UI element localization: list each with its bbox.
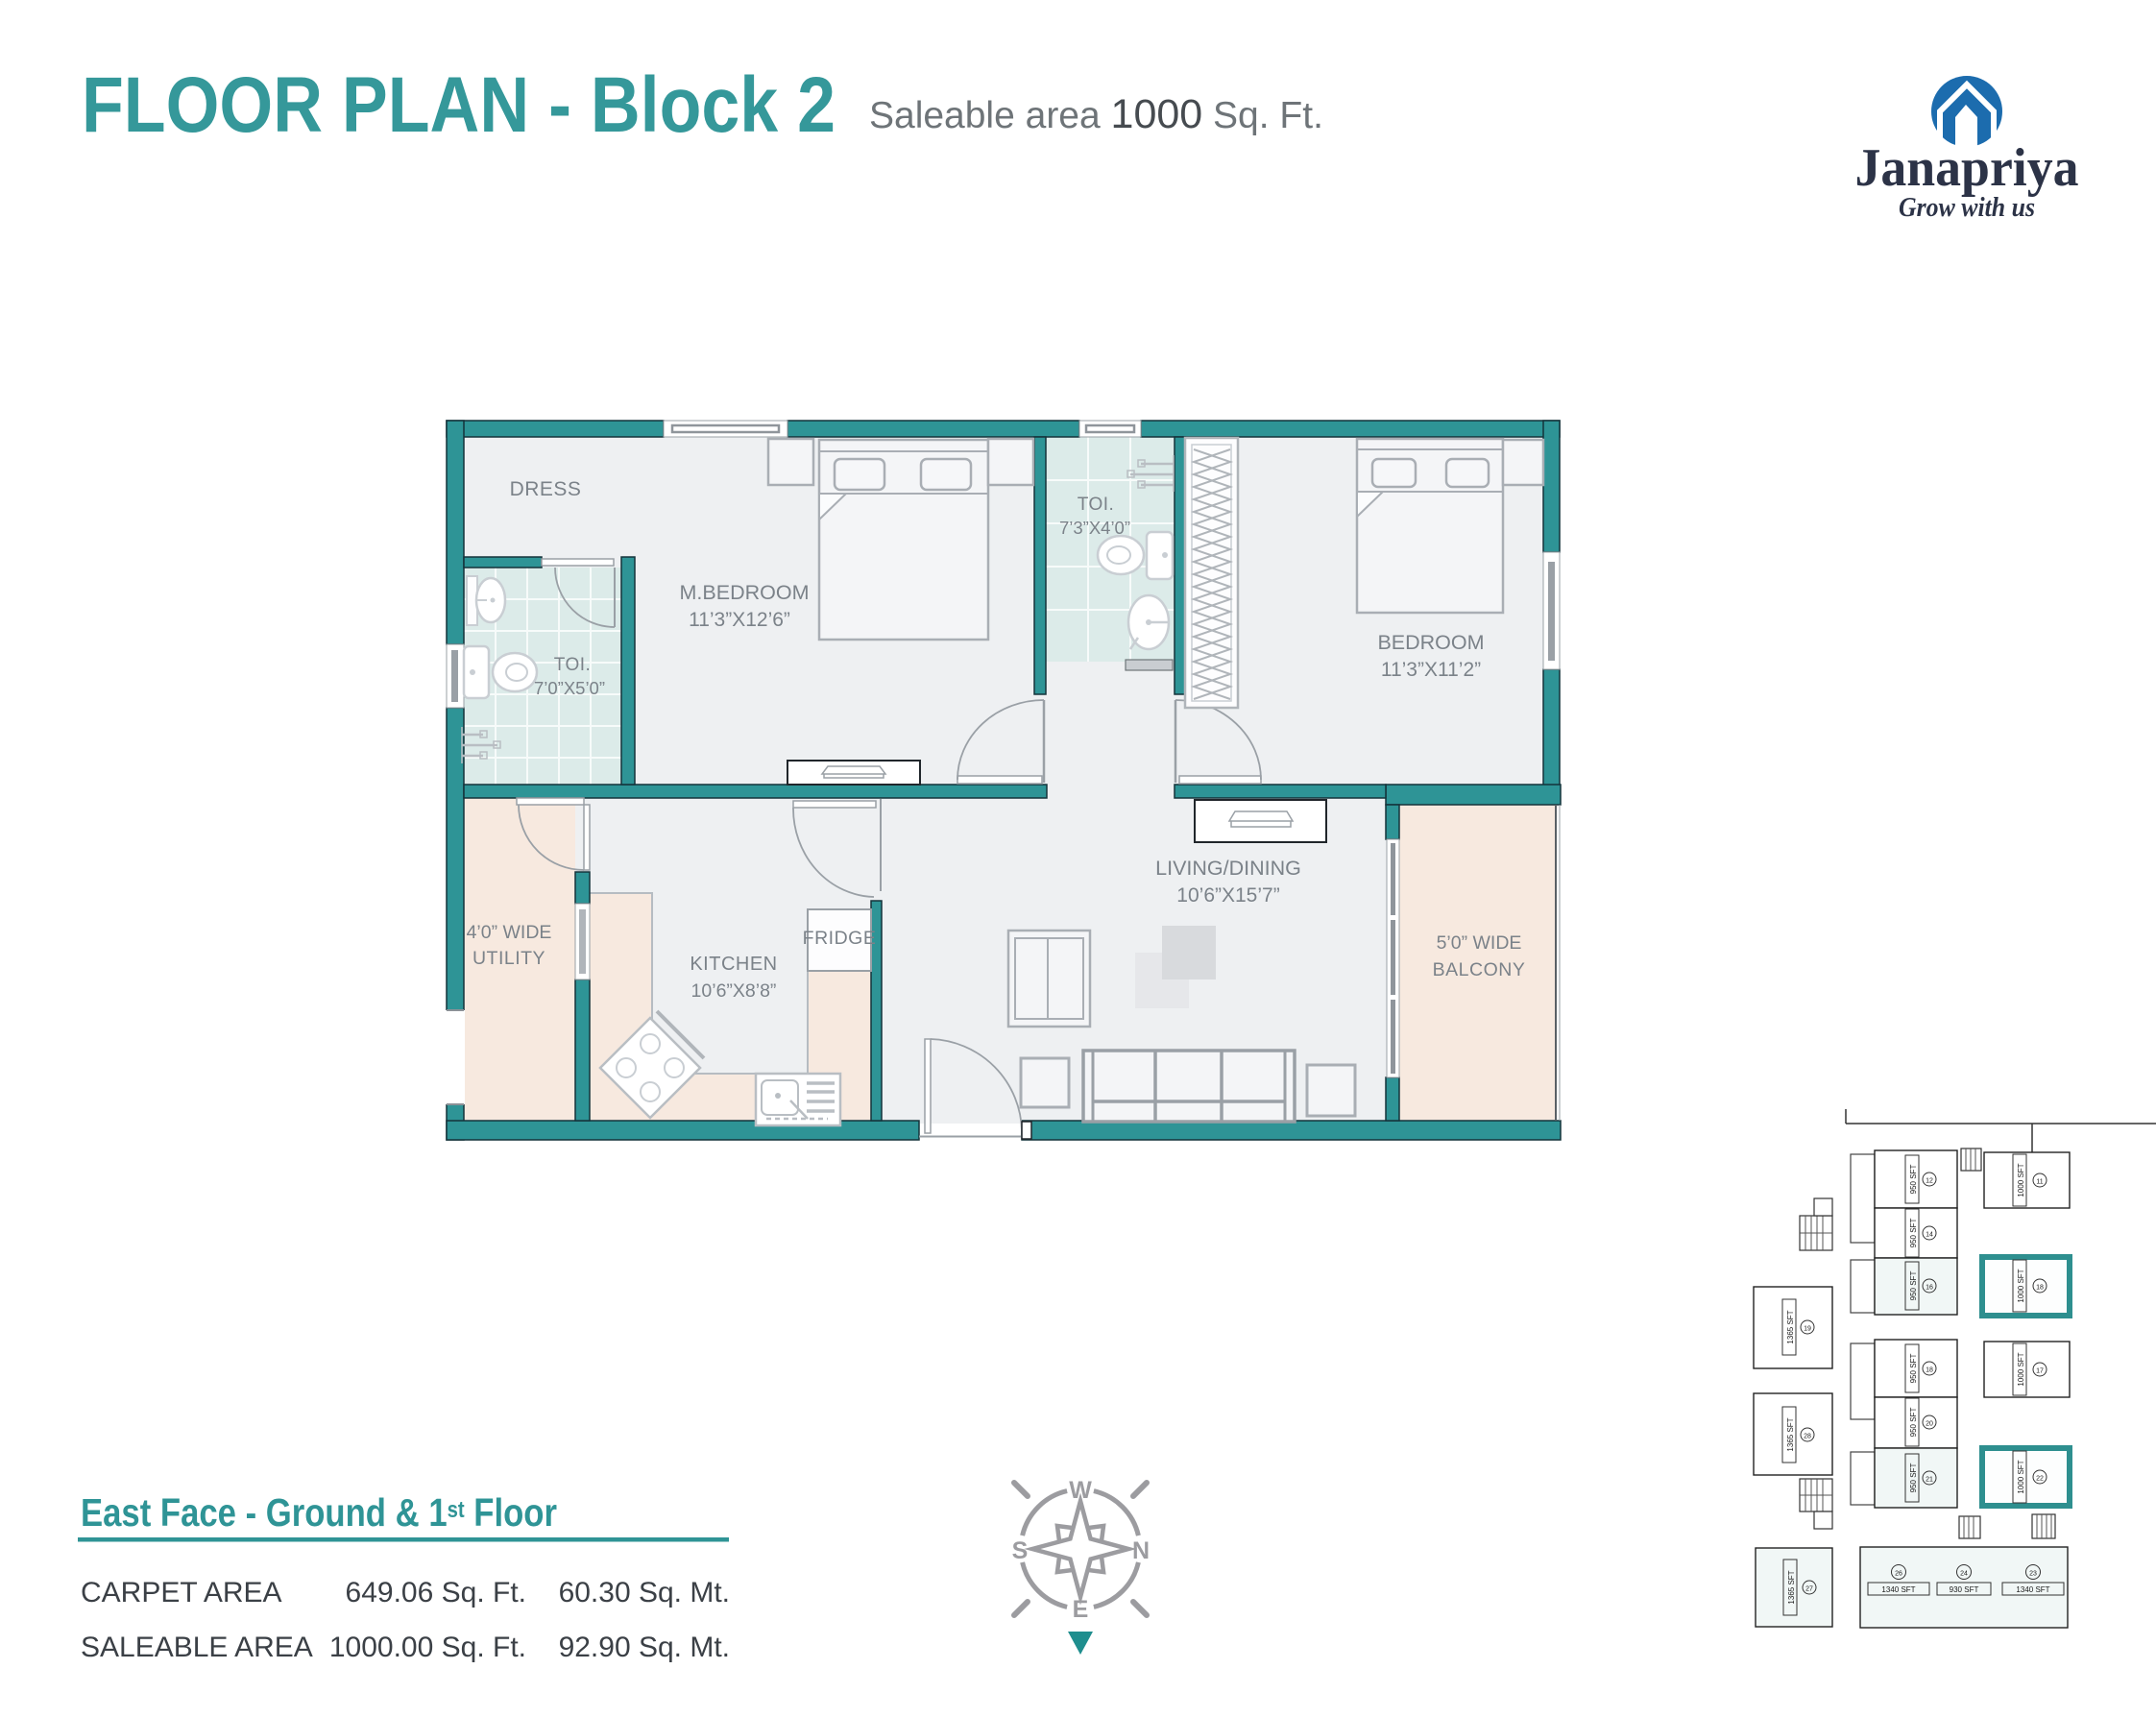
svg-text:17: 17	[2036, 1368, 2044, 1375]
svg-text:FLOOR PLAN - Block 2: FLOOR PLAN - Block 2	[82, 61, 836, 149]
svg-text:7’3”X4’0”: 7’3”X4’0”	[1059, 518, 1130, 538]
svg-text:1365 SFT: 1365 SFT	[1786, 1310, 1795, 1343]
svg-text:E: E	[1073, 1596, 1089, 1623]
svg-text:1340 SFT: 1340 SFT	[1881, 1585, 1915, 1594]
svg-text:950 SFT: 950 SFT	[1909, 1463, 1918, 1493]
svg-text:16: 16	[1926, 1285, 1933, 1292]
svg-text:11’3”X12’6”: 11’3”X12’6”	[689, 609, 790, 631]
svg-text:S: S	[1012, 1537, 1029, 1564]
svg-text:1365 SFT: 1365 SFT	[1786, 1417, 1795, 1451]
svg-text:950 SFT: 950 SFT	[1909, 1165, 1918, 1195]
svg-text:60.30 Sq. Mt.: 60.30 Sq. Mt.	[559, 1577, 730, 1608]
svg-text:92.90 Sq. Mt.: 92.90 Sq. Mt.	[559, 1632, 730, 1663]
svg-text:W: W	[1069, 1477, 1092, 1504]
svg-text:18: 18	[2036, 1285, 2044, 1292]
svg-text:18: 18	[1926, 1367, 1933, 1374]
svg-text:FRIDGE: FRIDGE	[803, 928, 877, 949]
svg-text:14: 14	[1926, 1232, 1933, 1239]
svg-text:26: 26	[1895, 1571, 1902, 1578]
svg-text:BALCONY: BALCONY	[1433, 959, 1526, 980]
svg-text:BEDROOM: BEDROOM	[1377, 631, 1484, 654]
svg-text:KITCHEN: KITCHEN	[690, 954, 777, 975]
svg-text:23: 23	[2029, 1571, 2037, 1578]
svg-text:East Face - Ground & 1st Floor: East Face - Ground & 1st Floor	[81, 1490, 557, 1535]
svg-text:TOI.: TOI.	[554, 655, 592, 675]
svg-text:UTILITY: UTILITY	[472, 948, 545, 969]
svg-text:11: 11	[2036, 1179, 2043, 1186]
svg-text:4’0” WIDE: 4’0” WIDE	[467, 922, 552, 943]
svg-text:28: 28	[1804, 1434, 1811, 1440]
svg-text:1340 SFT: 1340 SFT	[2016, 1585, 2049, 1594]
svg-text:7’0”X5’0”: 7’0”X5’0”	[534, 678, 605, 698]
svg-text:LIVING/DINING: LIVING/DINING	[1155, 857, 1301, 880]
svg-text:27: 27	[1805, 1586, 1813, 1593]
svg-text:1000 SFT: 1000 SFT	[2017, 1269, 2025, 1302]
svg-text:Janapriya: Janapriya	[1855, 138, 2079, 198]
svg-text:5’0” WIDE: 5’0” WIDE	[1437, 932, 1522, 954]
svg-text:950 SFT: 950 SFT	[1909, 1354, 1918, 1384]
svg-text:DRESS: DRESS	[510, 478, 582, 500]
svg-text:Grow with us: Grow with us	[1899, 193, 2035, 223]
svg-text:1000 SFT: 1000 SFT	[2017, 1460, 2025, 1493]
svg-text:1000 SFT: 1000 SFT	[2017, 1163, 2025, 1197]
svg-text:649.06 Sq. Ft.: 649.06 Sq. Ft.	[346, 1577, 526, 1608]
svg-text:24: 24	[1960, 1571, 1968, 1578]
svg-text:1000 SFT: 1000 SFT	[2017, 1352, 2025, 1386]
svg-text:Saleable area 1000 Sq. Ft.: Saleable area 1000 Sq. Ft.	[869, 91, 1323, 137]
svg-text:CARPET AREA: CARPET AREA	[81, 1577, 282, 1608]
svg-text:950 SFT: 950 SFT	[1909, 1271, 1918, 1301]
svg-text:TOI.: TOI.	[1078, 495, 1115, 515]
svg-text:930 SFT: 930 SFT	[1950, 1585, 1979, 1594]
svg-text:1000.00 Sq. Ft.: 1000.00 Sq. Ft.	[329, 1632, 526, 1663]
svg-text:20: 20	[1926, 1421, 1933, 1428]
svg-text:SALEABLE AREA: SALEABLE AREA	[81, 1632, 313, 1663]
svg-text:11’3”X11’2”: 11’3”X11’2”	[1381, 659, 1481, 681]
svg-text:950 SFT: 950 SFT	[1909, 1408, 1918, 1438]
svg-text:19: 19	[1804, 1326, 1811, 1333]
svg-text:1365 SFT: 1365 SFT	[1787, 1570, 1796, 1604]
svg-text:N: N	[1132, 1537, 1150, 1564]
svg-text:10’6”X8’8”: 10’6”X8’8”	[691, 980, 777, 1002]
svg-text:M.BEDROOM: M.BEDROOM	[680, 581, 810, 604]
svg-text:21: 21	[1926, 1477, 1933, 1484]
svg-text:12: 12	[1926, 1178, 1933, 1185]
svg-text:10’6”X15’7”: 10’6”X15’7”	[1176, 884, 1279, 907]
svg-text:950 SFT: 950 SFT	[1909, 1219, 1918, 1248]
svg-text:22: 22	[2036, 1476, 2044, 1483]
